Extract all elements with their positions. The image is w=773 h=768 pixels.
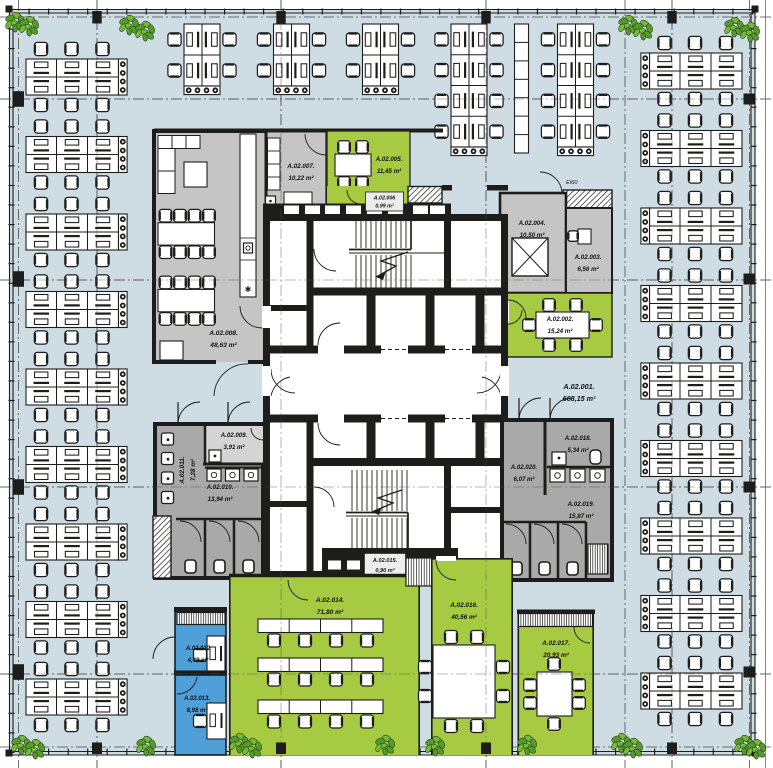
- svg-text:5,34 m²: 5,34 m²: [567, 447, 589, 454]
- svg-text:A.02.015.: A.02.015.: [372, 558, 398, 564]
- svg-text:A.02.006: A.02.006: [373, 196, 396, 202]
- svg-text:A.02.008.: A.02.008.: [208, 330, 238, 337]
- svg-text:A.02.002.: A.02.002.: [546, 316, 574, 323]
- svg-text:13,94 m²: 13,94 m²: [208, 496, 234, 503]
- svg-text:0,90 m²: 0,90 m²: [375, 567, 394, 574]
- svg-text:A.02.014.: A.02.014.: [315, 597, 345, 604]
- svg-text:15,87 m²: 15,87 m²: [569, 513, 595, 520]
- svg-text:8,98 m²: 8,98 m²: [187, 707, 209, 714]
- svg-text:EI60: EI60: [566, 180, 578, 186]
- svg-text:✱: ✱: [245, 285, 252, 294]
- svg-text:4,49 m²: 4,49 m²: [187, 657, 210, 664]
- svg-text:A.02.012: A.02.012: [185, 646, 211, 652]
- svg-text:11,45 m²: 11,45 m²: [377, 168, 402, 175]
- svg-text:15,24 m²: 15,24 m²: [548, 328, 574, 335]
- svg-text:0,99 m²: 0,99 m²: [375, 204, 393, 210]
- svg-text:48,63 m²: 48,63 m²: [209, 342, 237, 349]
- svg-text:7,28 m²: 7,28 m²: [190, 458, 197, 481]
- svg-text:A.02.010.: A.02.010.: [206, 484, 234, 491]
- svg-text:A.02.004.: A.02.004.: [518, 220, 546, 227]
- svg-text:6,56 m²: 6,56 m²: [577, 266, 599, 273]
- svg-text:A.02.003.: A.02.003.: [574, 254, 602, 261]
- svg-text:40,56 m²: 40,56 m²: [450, 614, 477, 621]
- svg-text:A.02.020.: A.02.020.: [510, 464, 538, 471]
- svg-text:A.02.019.: A.02.019.: [567, 501, 595, 508]
- svg-text:3,91 m²: 3,91 m²: [223, 444, 245, 451]
- svg-text:A.02.018.: A.02.018.: [564, 435, 592, 442]
- svg-text:A.02.013.: A.02.013.: [183, 696, 210, 702]
- svg-text:6,07 m²: 6,07 m²: [513, 476, 535, 483]
- svg-text:A.02.001.: A.02.001.: [562, 382, 594, 391]
- svg-text:71,80 m²: 71,80 m²: [317, 609, 344, 616]
- svg-text:A.02.017.: A.02.017.: [541, 640, 570, 647]
- svg-text:A.02.009.: A.02.009.: [220, 432, 248, 439]
- svg-text:10,22 m²: 10,22 m²: [288, 175, 314, 182]
- svg-text:668,15 m²: 668,15 m²: [563, 394, 596, 403]
- svg-text:A.02.011.: A.02.011.: [179, 456, 186, 484]
- svg-text:A.02.016.: A.02.016.: [449, 602, 478, 609]
- svg-text:10,50 m²: 10,50 m²: [520, 232, 546, 239]
- svg-text:A.02.005.: A.02.005.: [375, 156, 403, 163]
- svg-text:A.02.007.: A.02.007.: [286, 163, 315, 170]
